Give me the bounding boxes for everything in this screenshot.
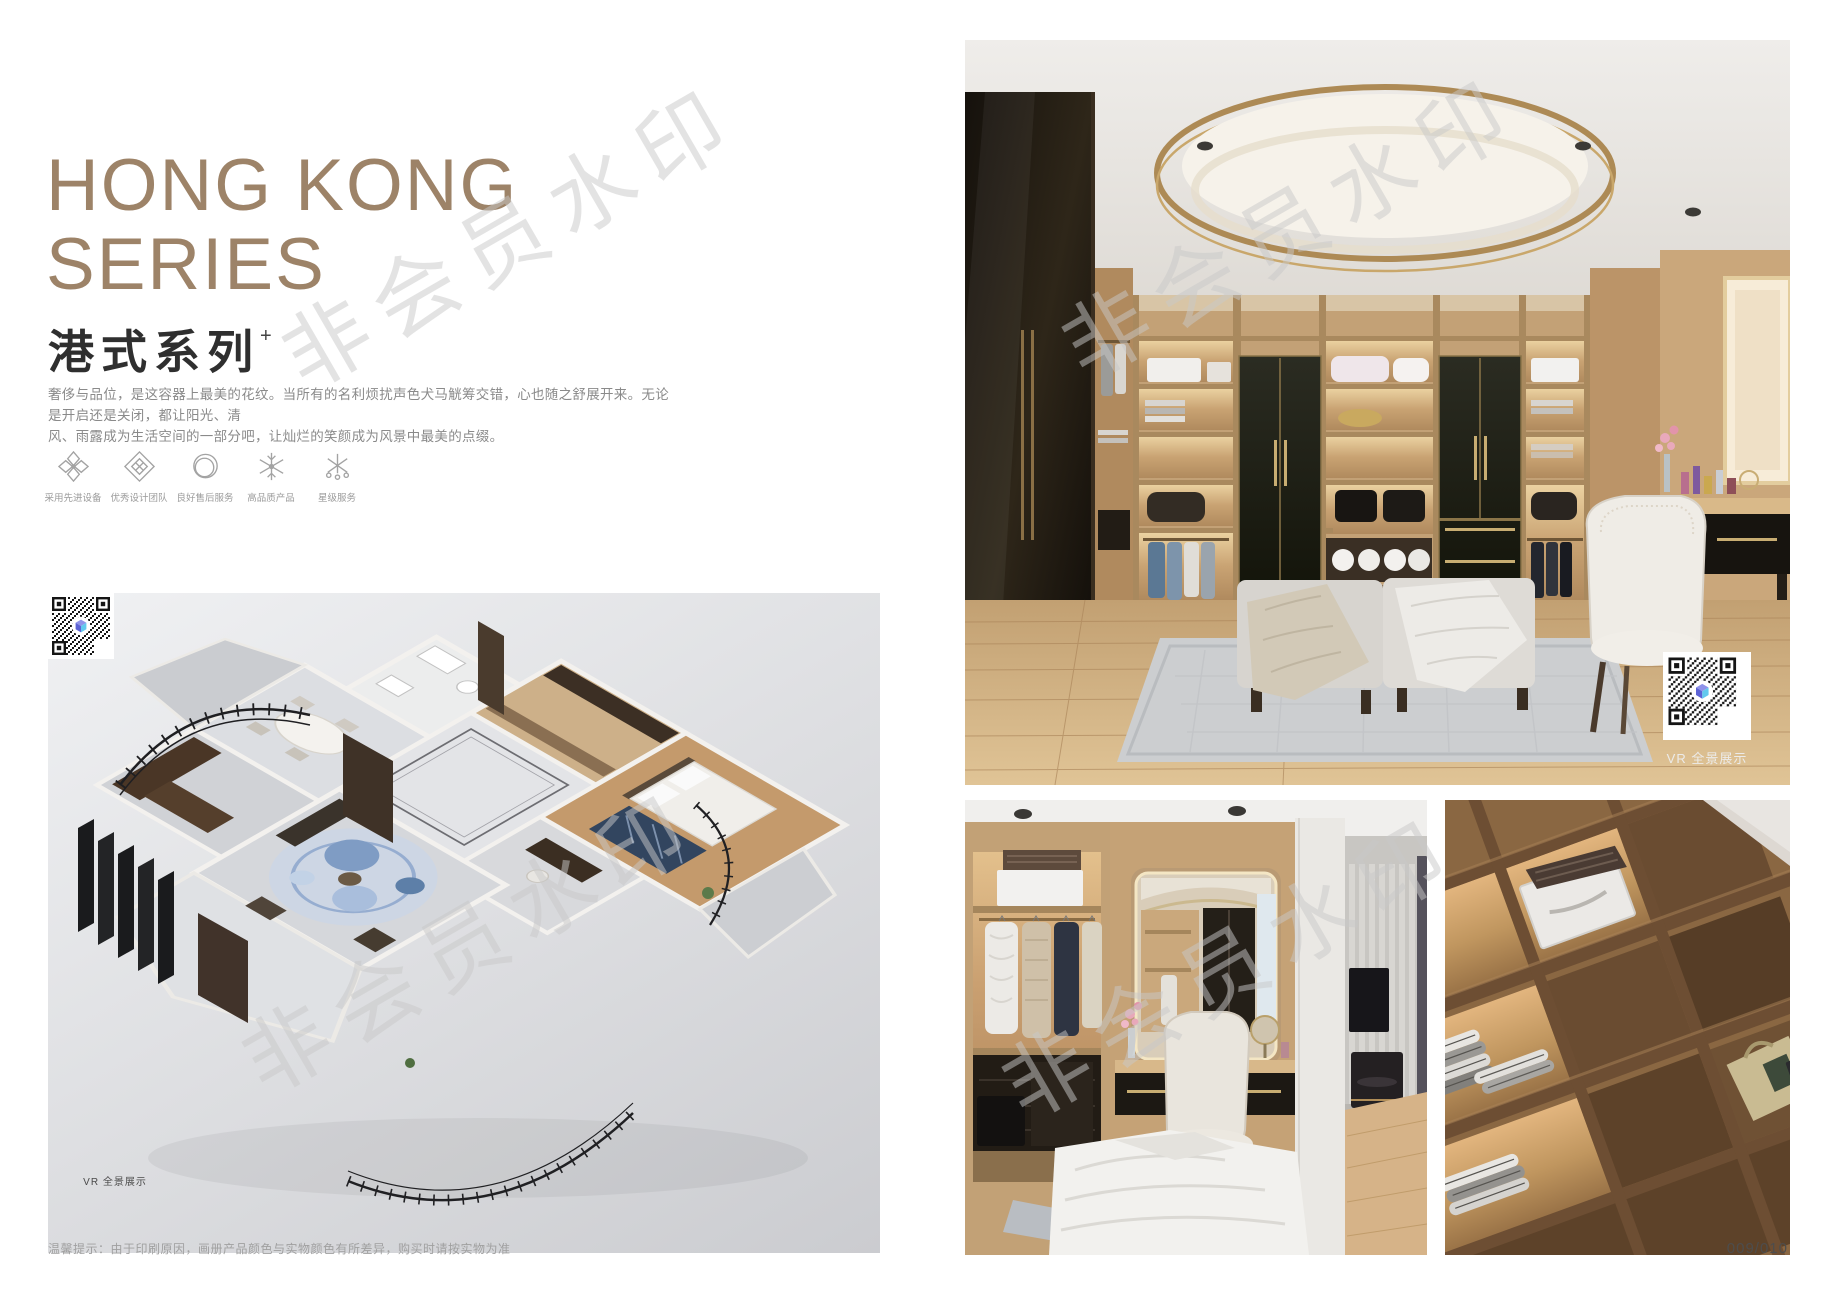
shelf-closeup-render [1445, 800, 1790, 1255]
feature-label: 采用先进设备 [44, 490, 101, 504]
series-title-line2: SERIES [46, 225, 518, 304]
dressing-area-photo [965, 800, 1427, 1255]
walkin-closet-photo: VR 全景展示 [965, 40, 1790, 785]
walkin-closet-render [965, 40, 1790, 785]
photo-vr-caption: VR 全景展示 [1641, 748, 1773, 767]
design-team-icon [123, 450, 156, 483]
series-title-en: HONG KONG SERIES [46, 146, 518, 304]
floorplan-panel: VR 全景展示 [48, 593, 880, 1253]
feature-design-team: 优秀设计团队 [106, 450, 172, 504]
floorplan-vr-caption: VR 全景展示 [54, 1173, 176, 1188]
series-title-cn: 港式系列+ [48, 316, 272, 382]
feature-quality-product: 高品质产品 [238, 450, 304, 504]
dressing-area-render [965, 800, 1427, 1255]
feature-label: 高品质产品 [247, 490, 295, 504]
star-service-icon [321, 450, 354, 483]
shelf-closeup-photo [1445, 800, 1790, 1255]
feature-list: 采用先进设备 优秀设计团队 良好售后服务 高品质产品 [40, 450, 370, 504]
series-description: 奢侈与品位，是这容器上最美的花纹。当所有的名利烦扰声色犬马觥筹交错，心也随之舒展… [48, 384, 673, 447]
feature-label: 星级服务 [318, 490, 356, 504]
photo-qr-code [1663, 652, 1751, 740]
feature-after-sales: 良好售后服务 [172, 450, 238, 504]
feature-label: 良好售后服务 [176, 490, 233, 504]
advanced-equipment-icon [57, 450, 90, 483]
description-line2: 风、雨露成为生活空间的一部分吧，让灿烂的笑颜成为风景中最美的点缀。 [48, 426, 673, 447]
feature-label: 优秀设计团队 [110, 490, 167, 504]
page-number: 009/010 [1727, 1240, 1788, 1257]
description-line1: 奢侈与品位，是这容器上最美的花纹。当所有的名利烦扰声色犬马觥筹交错，心也随之舒展… [48, 384, 673, 426]
feature-star-service: 星级服务 [304, 450, 370, 504]
quality-product-icon [255, 450, 288, 483]
print-disclaimer: 温馨提示：由于印刷原因，画册产品颜色与实物颜色有所差异，购买时请按实物为准 [48, 1240, 511, 1257]
after-sales-icon [189, 450, 222, 483]
catalog-page: HONG KONG SERIES 港式系列+ 奢侈与品位，是这容器上最美的花纹。… [0, 0, 1836, 1307]
series-title-line1: HONG KONG [46, 146, 518, 225]
title-superscript: + [260, 325, 272, 347]
feature-advanced-equipment: 采用先进设备 [40, 450, 106, 504]
isometric-floorplan [48, 593, 880, 1253]
floorplan-qr-code [48, 593, 114, 659]
